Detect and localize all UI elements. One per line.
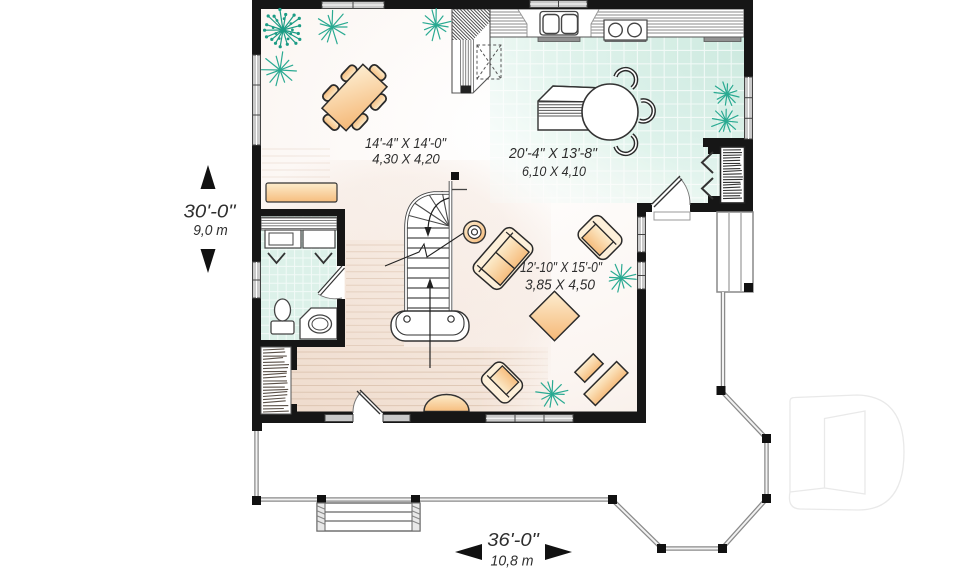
svg-text:10,8 m: 10,8 m <box>491 553 534 569</box>
svg-text:9,0 m: 9,0 m <box>193 222 228 239</box>
svg-text:20'-4" X 13'-8": 20'-4" X 13'-8" <box>508 146 598 162</box>
svg-text:6,10 X 4,10: 6,10 X 4,10 <box>522 163 586 179</box>
svg-text:36'-0": 36'-0" <box>487 530 540 550</box>
svg-text:4,30 X 4,20: 4,30 X 4,20 <box>372 151 440 167</box>
svg-text:12'-10" X 15'-0": 12'-10" X 15'-0" <box>520 259 603 276</box>
svg-text:30'-0": 30'-0" <box>184 202 238 222</box>
svg-text:3,85 X 4,50: 3,85 X 4,50 <box>525 278 595 294</box>
